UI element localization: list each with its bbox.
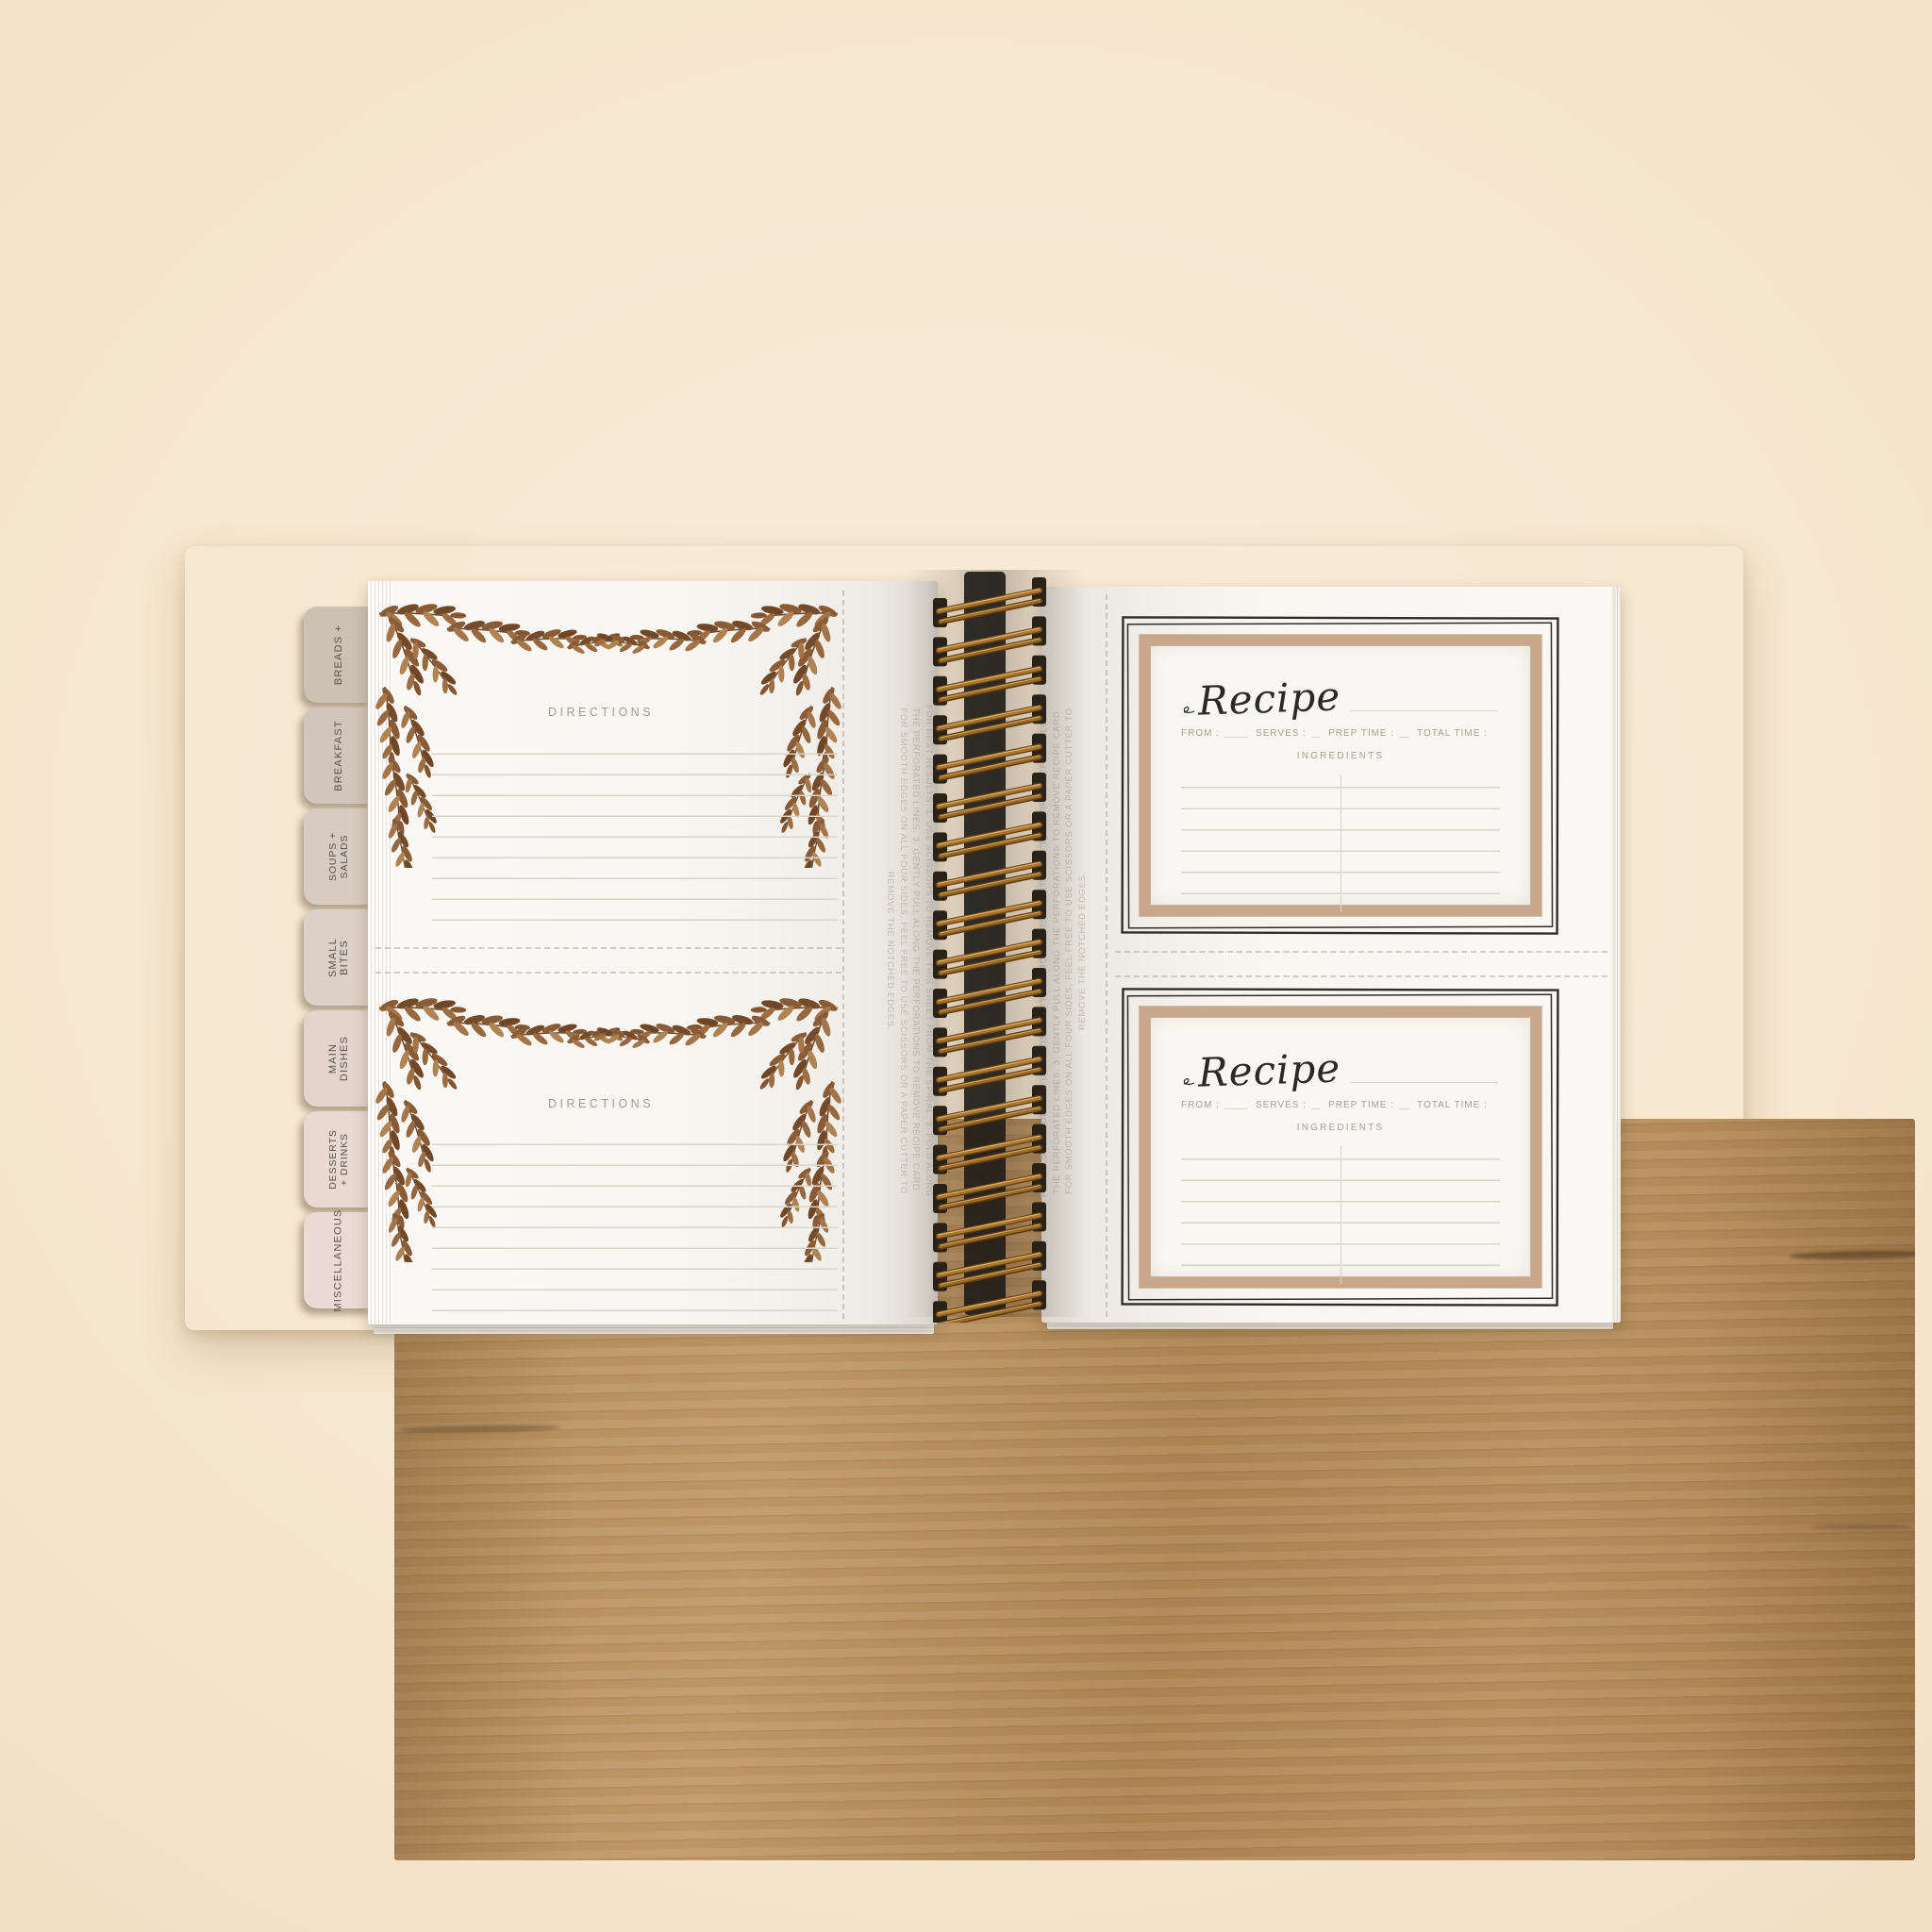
title-writing-line (1350, 1082, 1498, 1083)
prep-time-writing-line (1399, 1099, 1409, 1109)
tab-main-dishes: MAIN DISHES (304, 1010, 374, 1107)
flourish-icon (1181, 1074, 1196, 1087)
tab-label: MISCELLANEOUS (333, 1208, 344, 1311)
total-time-label: TOTAL TIME : (1417, 728, 1488, 739)
perforation-line (1115, 951, 1607, 953)
ingredients-label: INGREDIENTS (1181, 1123, 1500, 1133)
from-writing-line (1224, 727, 1248, 738)
from-writing-line (1224, 1099, 1248, 1109)
tab-label: MAIN DISHES (327, 1024, 350, 1093)
tab-soups-salads: SOUPS + SALADS (304, 808, 374, 905)
tab-label: BREADS + (333, 625, 344, 685)
directions-heading: DIRECTIONS (459, 706, 742, 719)
title-writing-line (1350, 710, 1498, 711)
ingredients-ruled-columns (1181, 1139, 1500, 1286)
tab-desserts-drinks: DESSERTS + DRINKS (304, 1111, 374, 1207)
from-label: FROM : (1181, 728, 1220, 739)
perforation-line (375, 947, 841, 949)
total-time-label: TOTAL TIME : (1417, 1100, 1488, 1110)
serves-label: SERVES : (1256, 728, 1307, 739)
prep-time-writing-line (1399, 727, 1409, 738)
perforation-line (1115, 975, 1607, 977)
recipe-card-title: Recipe (1197, 1048, 1341, 1092)
tab-label: SMALL BITES (327, 923, 350, 992)
tab-label: DESSERTS + DRINKS (327, 1129, 350, 1190)
product-photo-background: { "tabs": [ {"label": "BREADS +"}, {"lab… (0, 0, 1932, 1932)
serves-label: SERVES : (1256, 1100, 1307, 1110)
tab-miscellaneous: MISCELLANEOUS (304, 1212, 374, 1308)
tab-breakfast: BREAKFAST (304, 708, 374, 804)
ruled-lines (432, 734, 838, 936)
tab-small-bites: SMALL BITES (304, 909, 374, 1006)
prep-time-label: PREP TIME : (1328, 1100, 1394, 1110)
tab-label: SOUPS + SALADS (327, 832, 350, 881)
ingredients-label: INGREDIENTS (1181, 751, 1500, 761)
perforation-line (1106, 594, 1108, 1317)
serves-writing-line (1311, 727, 1321, 738)
watercolor-frame: Recipe FROM : SERVES : PREP TIME : TOTAL… (1140, 635, 1541, 916)
tab-breads: BREADS + (304, 607, 374, 703)
recipe-card-top: Recipe FROM : SERVES : PREP TIME : TOTAL… (1119, 613, 1562, 938)
flourish-icon (1181, 702, 1196, 715)
tab-label: BREAKFAST (333, 720, 344, 791)
from-label: FROM : (1181, 1100, 1220, 1110)
recipe-card-title: Recipe (1197, 676, 1341, 721)
ingredients-ruled-columns (1181, 767, 1500, 914)
ruled-lines (432, 1124, 838, 1315)
directions-heading: DIRECTIONS (459, 1097, 742, 1110)
watercolor-frame: Recipe FROM : SERVES : PREP TIME : TOTAL… (1140, 1007, 1541, 1288)
prep-time-label: PREP TIME : (1328, 728, 1394, 739)
perforation-line (842, 591, 844, 1319)
perforation-line (375, 972, 841, 974)
serves-writing-line (1311, 1099, 1321, 1109)
recipe-card-bottom: Recipe FROM : SERVES : PREP TIME : TOTAL… (1119, 985, 1562, 1309)
spiral-binding (932, 564, 1047, 1323)
